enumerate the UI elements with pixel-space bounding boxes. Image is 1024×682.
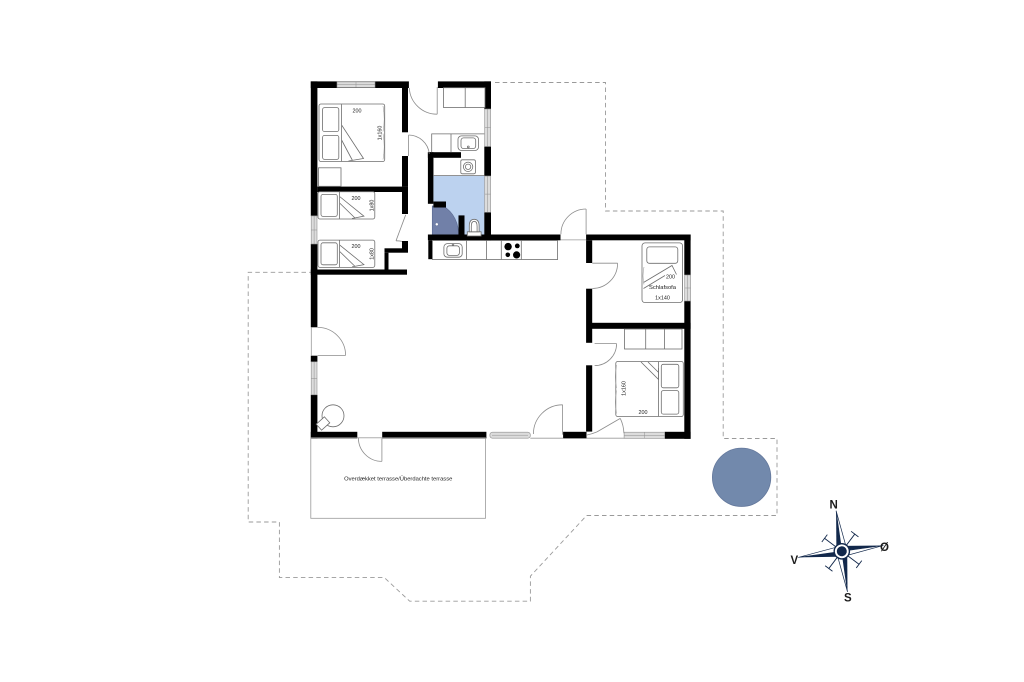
svg-text:200: 200 [352,196,361,202]
svg-text:Overdækket terrasse/Überdachte: Overdækket terrasse/Überdachte terrasse [344,475,452,482]
svg-text:V: V [791,555,799,567]
svg-text:1x80: 1x80 [369,200,375,212]
svg-text:200: 200 [639,410,648,416]
svg-text:1x140: 1x140 [655,296,670,302]
svg-text:1x160: 1x160 [621,381,627,396]
svg-text:200: 200 [353,108,362,114]
svg-text:200: 200 [666,275,675,281]
svg-text:1x80: 1x80 [369,248,375,260]
svg-text:S: S [844,593,852,605]
svg-text:Schlafsofa: Schlafsofa [649,285,677,291]
svg-text:N: N [830,500,838,512]
svg-text:1x160: 1x160 [378,126,384,141]
svg-text:200: 200 [352,244,361,250]
svg-text:Ø: Ø [880,542,889,554]
